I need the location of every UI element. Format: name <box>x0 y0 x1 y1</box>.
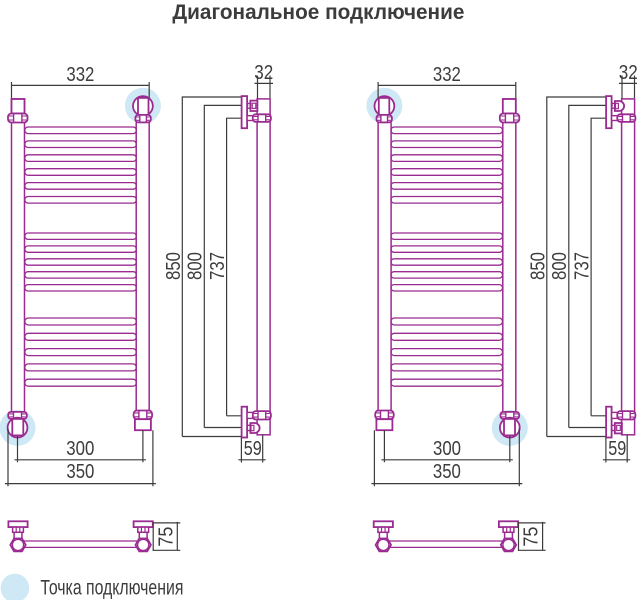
svg-text:300: 300 <box>66 438 94 460</box>
svg-text:59: 59 <box>244 438 262 460</box>
svg-text:300: 300 <box>433 438 461 460</box>
svg-text:800: 800 <box>185 252 207 280</box>
svg-text:Диагональное подключение: Диагональное подключение <box>172 0 464 24</box>
svg-text:350: 350 <box>66 461 94 483</box>
svg-text:332: 332 <box>433 64 461 86</box>
svg-text:32: 32 <box>619 62 637 84</box>
svg-text:737: 737 <box>571 252 593 280</box>
svg-text:850: 850 <box>527 252 549 280</box>
svg-text:59: 59 <box>608 438 626 460</box>
svg-text:850: 850 <box>163 252 185 280</box>
svg-text:350: 350 <box>433 461 461 483</box>
svg-text:737: 737 <box>207 252 229 280</box>
svg-text:75: 75 <box>521 527 543 547</box>
svg-text:332: 332 <box>66 64 94 86</box>
svg-text:800: 800 <box>549 252 571 280</box>
svg-text:75: 75 <box>155 527 177 547</box>
svg-text:32: 32 <box>254 62 273 84</box>
svg-text:Точка подключения: Точка подключения <box>40 576 183 600</box>
